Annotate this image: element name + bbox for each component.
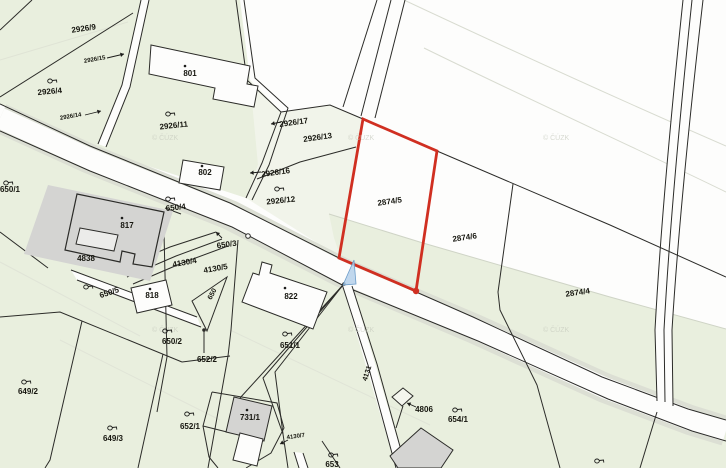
svg-text:650/2: 650/2 [162, 337, 183, 346]
svg-text:650/1: 650/1 [0, 185, 21, 194]
watermark: © ČÚZK [348, 325, 374, 334]
building-point-icon [184, 65, 187, 68]
svg-text:653: 653 [325, 460, 339, 468]
building-point-icon [284, 287, 287, 290]
building-point-icon [201, 165, 204, 168]
svg-text:652/2: 652/2 [197, 355, 218, 364]
svg-text:818: 818 [145, 291, 159, 300]
svg-text:652/1: 652/1 [180, 422, 201, 431]
watermark: © ČÚZK [348, 133, 374, 142]
parcel-label: 652/2 [197, 355, 218, 364]
watermark: © ČÚZK [543, 133, 569, 142]
selected-parcel-vertex [413, 288, 419, 294]
svg-text:4806: 4806 [415, 405, 433, 414]
cadastral-map-canvas[interactable]: © ČÚZK © ČÚZK © ČÚZK © ČÚZK © ČÚZK © ČÚZ… [0, 0, 726, 468]
svg-text:802: 802 [198, 168, 212, 177]
building-point-icon [246, 409, 249, 412]
svg-text:654/1: 654/1 [448, 415, 469, 424]
building-point-icon [121, 217, 124, 220]
parcel-label: 4838 [77, 254, 95, 263]
svg-text:822: 822 [284, 292, 298, 301]
svg-text:801: 801 [183, 69, 197, 78]
building-point-icon [149, 288, 152, 291]
svg-text:4838: 4838 [77, 254, 95, 263]
svg-text:649/2: 649/2 [18, 387, 39, 396]
svg-text:649/3: 649/3 [103, 434, 124, 443]
svg-text:651/1: 651/1 [280, 341, 301, 350]
svg-text:817: 817 [120, 221, 134, 230]
watermark: © ČÚZK [152, 133, 178, 142]
svg-text:731/1: 731/1 [240, 413, 261, 422]
cadastral-map-viewport[interactable]: © ČÚZK © ČÚZK © ČÚZK © ČÚZK © ČÚZK © ČÚZ… [0, 0, 726, 468]
watermark: © ČÚZK [543, 325, 569, 334]
